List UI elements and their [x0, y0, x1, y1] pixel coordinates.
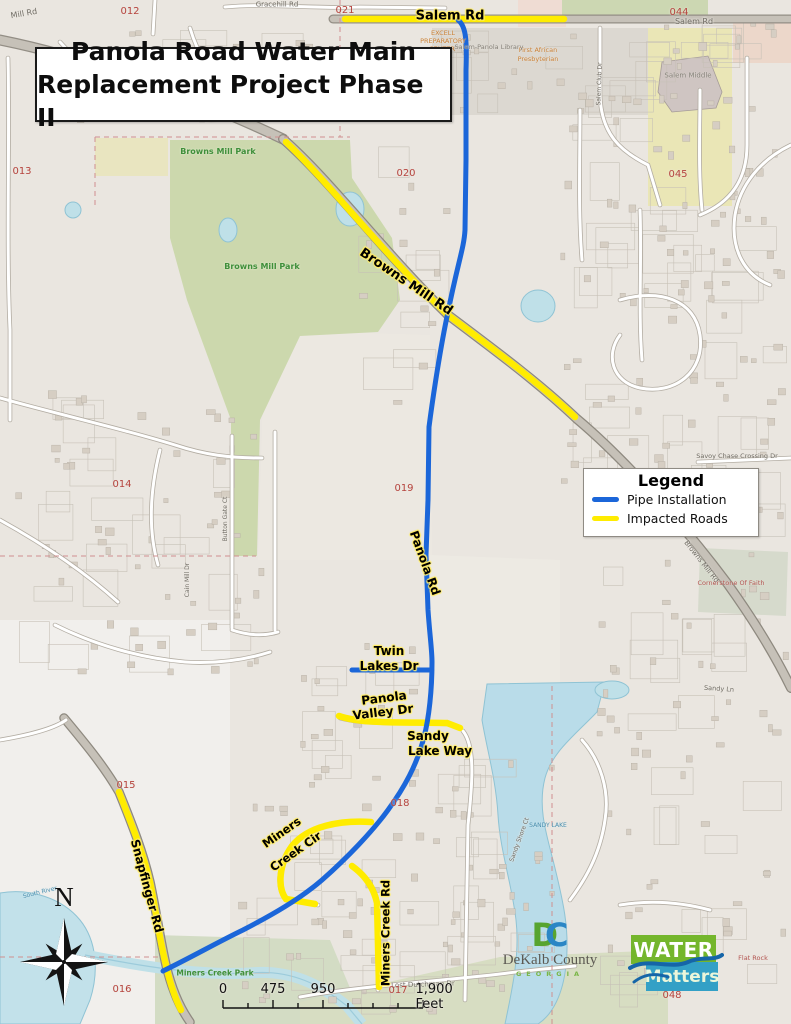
map-label-pc: 014 [112, 480, 131, 490]
compass-north-label: N [54, 882, 74, 913]
map-label-or: Presbyterian [518, 56, 559, 63]
map-label-pr: Cornerstone Of Faith [697, 580, 764, 587]
map-label-or: EXCELL [431, 30, 455, 37]
legend-swatch [592, 497, 619, 502]
title-line-1: Panola Road Water Main [71, 35, 416, 68]
scale-tick-label: 0 [219, 982, 227, 997]
dekalb-state: GEORGIA [492, 970, 608, 978]
map-label-pc: 015 [116, 781, 135, 791]
legend-item: Pipe Installation [584, 490, 758, 509]
compass-rose: N [18, 882, 110, 1020]
title-box: Panola Road Water Main Replacement Proje… [35, 47, 452, 122]
map-label-mn: Savoy Chase Crossing Dr [696, 453, 778, 460]
map-label-pc: 018 [390, 799, 409, 809]
water-matters-wave-icon [628, 930, 724, 996]
scale-tick-label: 475 [261, 982, 286, 997]
legend-item-label: Pipe Installation [627, 492, 727, 507]
legend-item-label: Impacted Roads [627, 511, 728, 526]
map-label-hl: Lake Way [408, 745, 472, 757]
legend-title: Legend [584, 471, 758, 490]
map-label-mn: Cain Mill Dr [185, 563, 191, 597]
map-label-hl: Miners Creek Rd [380, 880, 392, 986]
water-matters-logo: WATER Matters [628, 930, 724, 996]
map-label-pc: 044 [669, 8, 688, 18]
map-label-mn: Button Gate Ct [223, 497, 229, 542]
dekalb-name: DeKalb County [492, 952, 608, 969]
map-label-pc: 013 [12, 167, 31, 177]
map-label-hl: Sandy [407, 730, 449, 742]
map-label-pc: 016 [112, 985, 131, 995]
map-label-pr: Flat Rock [738, 955, 768, 962]
map-label-mn: Gracehill Rd [256, 2, 299, 9]
map-label-hl: Twin [374, 645, 405, 657]
map-label-pg: Salem-Panola Library [455, 44, 524, 51]
project-map: Panola Road Water Main Replacement Proje… [0, 0, 791, 1024]
scale-tick-label: 1,900 Feet [416, 982, 469, 1012]
map-label-wt: SANDY LAKE [529, 823, 567, 829]
dekalb-monogram: DC [492, 916, 608, 954]
map-label-pc: 021 [335, 6, 354, 16]
map-label-pk: Miners Creek Park [176, 969, 253, 977]
dekalb-monogram-c: C [545, 916, 568, 954]
map-label-pc: 019 [394, 484, 413, 494]
map-label-pk: Browns Mill Park [224, 263, 299, 271]
map-label-hl: Salem Rd [416, 10, 485, 23]
map-label-pc: 045 [668, 170, 687, 180]
map-label-pc: 020 [396, 169, 415, 179]
legend-items: Pipe InstallationImpacted Roads [584, 490, 758, 528]
map-label-mn: Salem Rd [675, 18, 713, 26]
legend: Legend Pipe InstallationImpacted Roads [583, 468, 759, 537]
title-line-2: Replacement Project Phase II [37, 68, 450, 134]
map-label-hl: Lakes Dr [360, 660, 419, 672]
map-label-or: First African [519, 47, 557, 54]
dekalb-county-logo: DC DeKalb County GEORGIA [492, 916, 608, 986]
map-label-pg: Salem Middle [664, 73, 711, 80]
legend-item: Impacted Roads [584, 509, 758, 528]
legend-swatch [592, 516, 619, 521]
scale-bar: 0 475 950 1,900 Feet [205, 982, 495, 1016]
map-label-mn: Sandy Ln [704, 685, 734, 694]
scale-tick-label: 950 [311, 982, 336, 997]
map-label-pk: Browns Mill Park [180, 148, 255, 156]
map-label-pc: 012 [120, 7, 139, 17]
